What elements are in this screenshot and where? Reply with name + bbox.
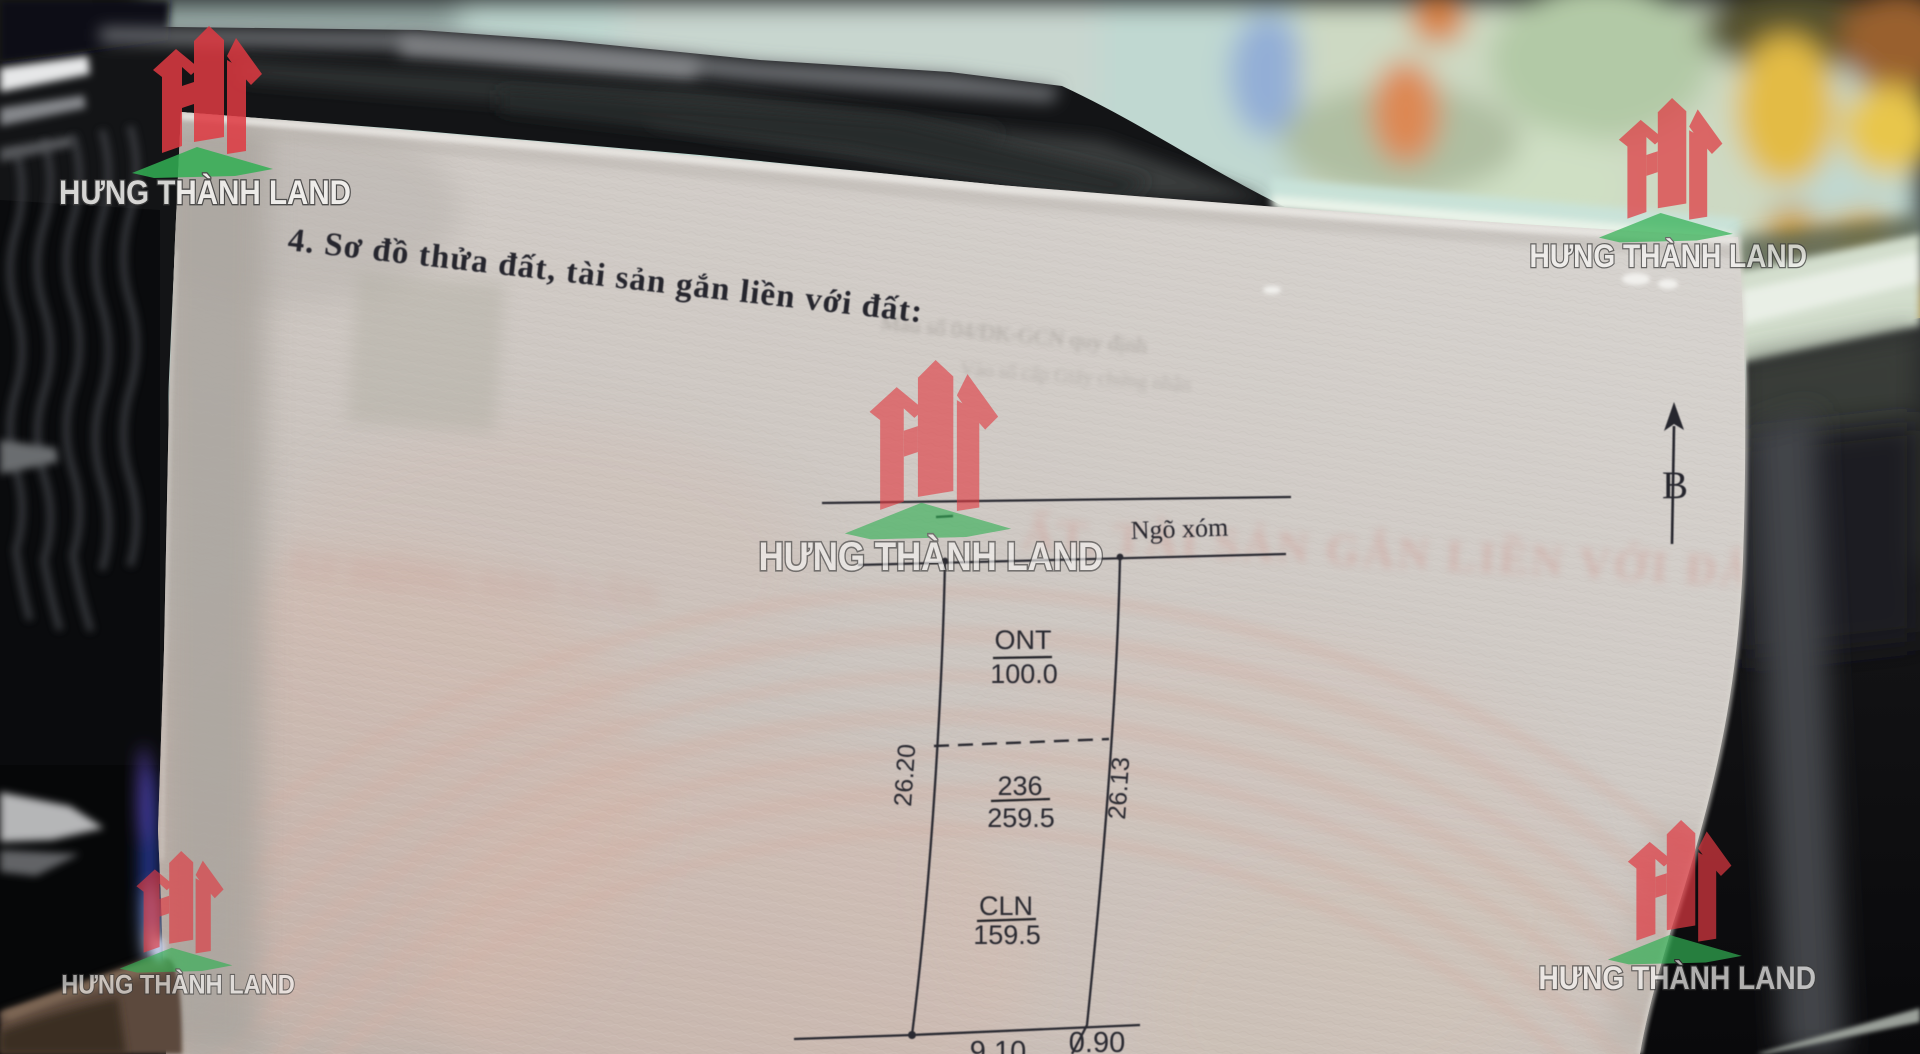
svg-text:CLN: CLN	[979, 891, 1033, 921]
svg-text:236: 236	[997, 771, 1042, 801]
svg-text:0.90: 0.90	[1069, 1027, 1125, 1054]
svg-text:ONT: ONT	[995, 625, 1052, 655]
svg-text:Ngõ xóm: Ngõ xóm	[1130, 513, 1228, 545]
svg-text:26.20: 26.20	[889, 743, 921, 807]
svg-text:159.5: 159.5	[973, 920, 1041, 950]
svg-text:9.10: 9.10	[970, 1036, 1026, 1054]
svg-text:B: B	[1662, 464, 1688, 507]
svg-text:26.13: 26.13	[1103, 756, 1135, 820]
svg-text:100.0: 100.0	[990, 659, 1058, 689]
svg-text:259.5: 259.5	[987, 803, 1055, 833]
